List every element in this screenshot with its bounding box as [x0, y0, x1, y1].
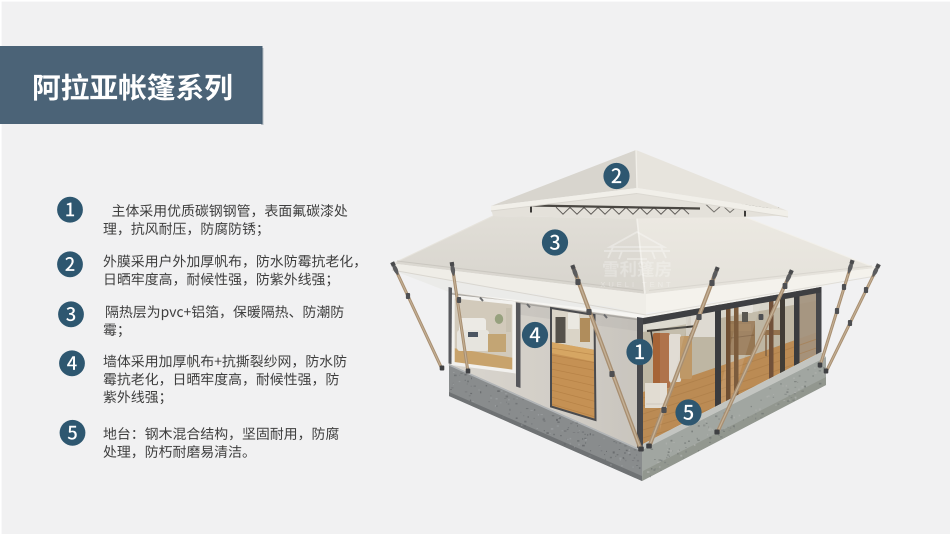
svg-text:XUELI TENT: XUELI TENT — [600, 280, 673, 289]
